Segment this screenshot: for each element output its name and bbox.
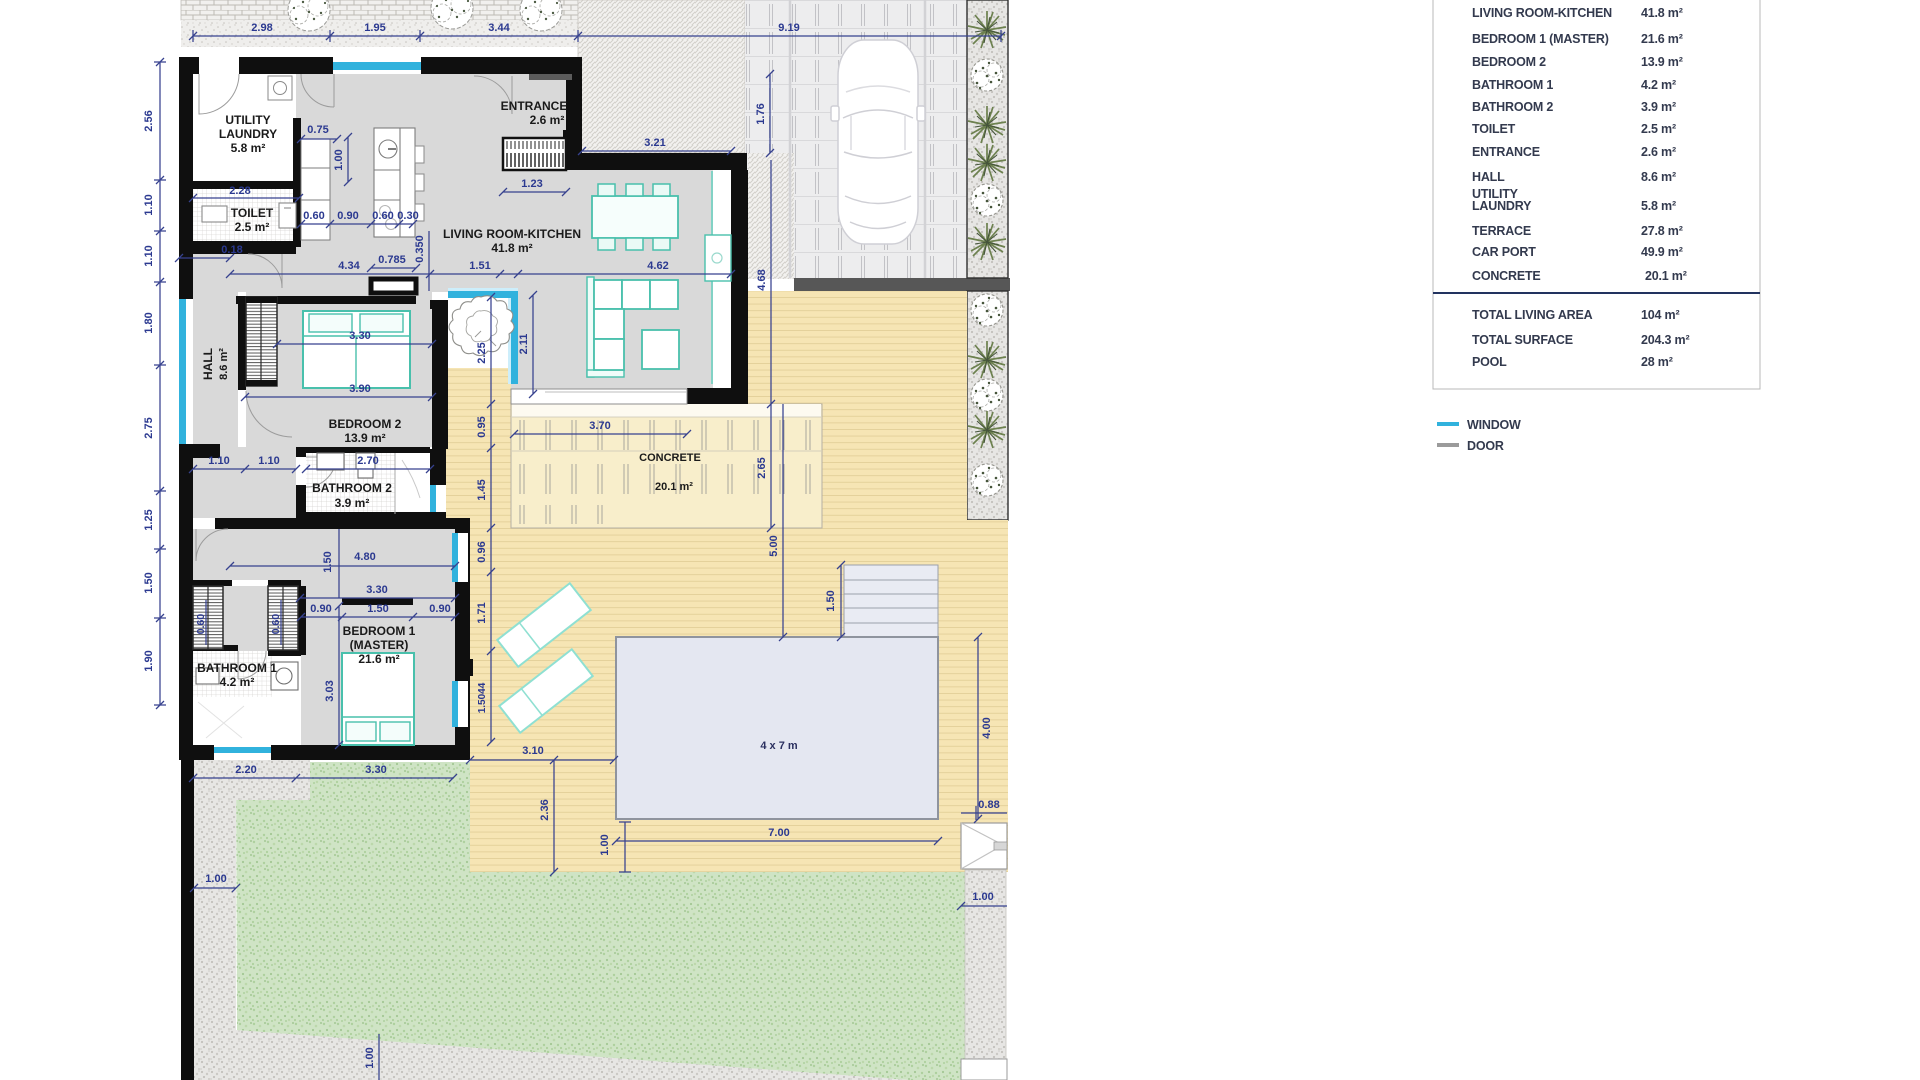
svg-text:2.98: 2.98 xyxy=(251,22,272,34)
svg-text:4 x 7 m: 4 x 7 m xyxy=(760,740,798,752)
svg-text:2.65: 2.65 xyxy=(756,457,768,478)
svg-text:BATHROOM 2: BATHROOM 2 xyxy=(312,481,392,495)
svg-text:4.00: 4.00 xyxy=(981,717,993,738)
svg-text:1.23: 1.23 xyxy=(521,178,542,190)
svg-text:0.60: 0.60 xyxy=(372,210,393,222)
svg-text:2.70: 2.70 xyxy=(357,455,378,467)
svg-text:0.350: 0.350 xyxy=(414,235,426,263)
svg-text:1.5044: 1.5044 xyxy=(477,682,488,713)
svg-text:ENTRANCE: ENTRANCE xyxy=(501,99,568,113)
svg-text:1.80: 1.80 xyxy=(143,312,155,333)
svg-text:28 m²: 28 m² xyxy=(1641,355,1673,369)
svg-text:1.50: 1.50 xyxy=(825,590,837,611)
svg-text:3.30: 3.30 xyxy=(366,584,387,596)
svg-text:HALL: HALL xyxy=(201,348,215,380)
svg-text:0.30: 0.30 xyxy=(397,210,418,222)
svg-text:2.36: 2.36 xyxy=(539,799,551,820)
svg-text:POOL: POOL xyxy=(1472,355,1507,369)
svg-text:1.76: 1.76 xyxy=(755,103,767,124)
svg-text:8.6 m²: 8.6 m² xyxy=(218,348,230,380)
svg-text:49.9 m²: 49.9 m² xyxy=(1641,245,1683,259)
svg-text:204.3 m²: 204.3 m² xyxy=(1641,333,1689,347)
svg-text:1.45: 1.45 xyxy=(476,479,488,500)
svg-text:2.11: 2.11 xyxy=(518,334,530,355)
svg-text:104 m²: 104 m² xyxy=(1641,308,1679,322)
svg-text:1.90: 1.90 xyxy=(143,650,155,671)
svg-text:2.28: 2.28 xyxy=(229,185,250,197)
svg-text:TERRACE: TERRACE xyxy=(1472,224,1531,238)
svg-text:0.90: 0.90 xyxy=(429,603,450,615)
svg-text:TOILET: TOILET xyxy=(1472,122,1516,136)
svg-text:2.6 m²: 2.6 m² xyxy=(1641,145,1676,159)
svg-text:LAUNDRY: LAUNDRY xyxy=(1472,199,1532,213)
svg-text:4.2 m²: 4.2 m² xyxy=(220,675,255,689)
svg-text:TOTAL SURFACE: TOTAL SURFACE xyxy=(1472,333,1573,347)
svg-text:3.21: 3.21 xyxy=(644,137,665,149)
svg-text:0.90: 0.90 xyxy=(310,603,331,615)
svg-text:UTILITY: UTILITY xyxy=(225,113,270,127)
svg-text:27.8 m²: 27.8 m² xyxy=(1641,224,1683,238)
svg-text:2.5 m²: 2.5 m² xyxy=(1641,122,1676,136)
svg-text:LAUNDRY: LAUNDRY xyxy=(219,127,277,141)
svg-text:41.8 m²: 41.8 m² xyxy=(1641,6,1683,20)
svg-text:13.9 m²: 13.9 m² xyxy=(344,431,385,445)
svg-text:0.18: 0.18 xyxy=(221,244,242,256)
svg-text:20.1 m²: 20.1 m² xyxy=(1645,269,1687,283)
svg-text:21.6 m²: 21.6 m² xyxy=(358,652,399,666)
svg-text:2.75: 2.75 xyxy=(143,417,155,438)
svg-text:DOOR: DOOR xyxy=(1467,439,1504,453)
svg-text:1.10: 1.10 xyxy=(143,194,155,215)
svg-text:BEDROOM 1: BEDROOM 1 xyxy=(343,624,416,638)
svg-text:3.90: 3.90 xyxy=(349,383,370,395)
svg-text:1.51: 1.51 xyxy=(469,260,490,272)
svg-text:1.00: 1.00 xyxy=(205,873,226,885)
svg-text:2.25: 2.25 xyxy=(476,342,488,363)
svg-text:5.00: 5.00 xyxy=(768,535,780,556)
svg-text:WINDOW: WINDOW xyxy=(1467,418,1521,432)
svg-text:CONCRETE: CONCRETE xyxy=(1472,269,1541,283)
svg-text:21.6 m²: 21.6 m² xyxy=(1641,32,1683,46)
svg-text:7.00: 7.00 xyxy=(768,827,789,839)
svg-text:1.00: 1.00 xyxy=(599,834,611,855)
svg-text:ENTRANCE: ENTRANCE xyxy=(1472,145,1540,159)
svg-text:1.71: 1.71 xyxy=(476,602,488,623)
svg-text:4.62: 4.62 xyxy=(647,260,668,272)
svg-text:0.90: 0.90 xyxy=(337,210,358,222)
svg-text:TOTAL LIVING AREA: TOTAL LIVING AREA xyxy=(1472,308,1593,322)
svg-text:2.6 m²: 2.6 m² xyxy=(530,113,565,127)
svg-text:BEDROOM 2: BEDROOM 2 xyxy=(329,417,402,431)
svg-text:BEDROOM 2: BEDROOM 2 xyxy=(1472,55,1546,69)
svg-text:0.96: 0.96 xyxy=(476,541,488,562)
svg-text:1.00: 1.00 xyxy=(972,891,993,903)
svg-text:1.10: 1.10 xyxy=(208,455,229,467)
svg-text:2.20: 2.20 xyxy=(235,764,256,776)
svg-text:9.19: 9.19 xyxy=(778,22,799,34)
svg-text:5.8 m²: 5.8 m² xyxy=(1641,199,1676,213)
svg-text:TOILET: TOILET xyxy=(231,206,274,220)
svg-text:20.1 m²: 20.1 m² xyxy=(655,481,693,493)
svg-text:3.03: 3.03 xyxy=(324,680,336,701)
svg-text:3.70: 3.70 xyxy=(589,420,610,432)
svg-text:3.9 m²: 3.9 m² xyxy=(1641,100,1676,114)
svg-text:1.50: 1.50 xyxy=(143,572,155,593)
svg-text:BATHROOM 1: BATHROOM 1 xyxy=(1472,78,1553,92)
svg-text:0.60: 0.60 xyxy=(303,210,324,222)
svg-text:4.68: 4.68 xyxy=(756,269,768,290)
svg-text:4.80: 4.80 xyxy=(354,551,375,563)
svg-text:(MASTER): (MASTER) xyxy=(350,638,409,652)
svg-text:3.44: 3.44 xyxy=(488,22,510,34)
svg-text:2.56: 2.56 xyxy=(143,110,155,131)
svg-text:1.10: 1.10 xyxy=(143,245,155,266)
svg-text:4.34: 4.34 xyxy=(338,260,360,272)
svg-text:5.8 m²: 5.8 m² xyxy=(231,141,266,155)
svg-text:0.75: 0.75 xyxy=(307,124,328,136)
svg-text:0.95: 0.95 xyxy=(476,416,488,437)
svg-text:0.88: 0.88 xyxy=(978,799,999,811)
svg-text:1.95: 1.95 xyxy=(364,22,385,34)
svg-text:1.00: 1.00 xyxy=(364,1047,376,1068)
svg-text:1.50: 1.50 xyxy=(367,603,388,615)
svg-text:1.10: 1.10 xyxy=(258,455,279,467)
svg-text:CAR PORT: CAR PORT xyxy=(1472,245,1536,259)
svg-text:2.5 m²: 2.5 m² xyxy=(235,220,270,234)
svg-text:LIVING ROOM-KITCHEN: LIVING ROOM-KITCHEN xyxy=(443,227,581,241)
svg-text:0.60: 0.60 xyxy=(270,614,282,635)
svg-text:0.60: 0.60 xyxy=(195,614,207,635)
svg-text:BATHROOM 1: BATHROOM 1 xyxy=(197,661,277,675)
svg-text:BEDROOM 1 (MASTER): BEDROOM 1 (MASTER) xyxy=(1472,32,1609,46)
svg-text:4.2 m²: 4.2 m² xyxy=(1641,78,1676,92)
svg-text:1.25: 1.25 xyxy=(143,509,155,530)
svg-text:3.30: 3.30 xyxy=(349,330,370,342)
svg-text:41.8 m²: 41.8 m² xyxy=(491,241,532,255)
svg-text:LIVING ROOM-KITCHEN: LIVING ROOM-KITCHEN xyxy=(1472,6,1612,20)
svg-text:HALL: HALL xyxy=(1472,170,1505,184)
svg-text:3.30: 3.30 xyxy=(365,764,386,776)
svg-text:1.50: 1.50 xyxy=(322,551,334,572)
svg-text:3.9 m²: 3.9 m² xyxy=(335,496,370,510)
svg-text:3.10: 3.10 xyxy=(522,745,543,757)
svg-text:CONCRETE: CONCRETE xyxy=(639,452,701,464)
svg-text:1.00: 1.00 xyxy=(333,149,345,170)
svg-text:13.9 m²: 13.9 m² xyxy=(1641,55,1683,69)
svg-text:8.6 m²: 8.6 m² xyxy=(1641,170,1676,184)
svg-text:BATHROOM 2: BATHROOM 2 xyxy=(1472,100,1553,114)
svg-text:0.785: 0.785 xyxy=(378,254,406,266)
